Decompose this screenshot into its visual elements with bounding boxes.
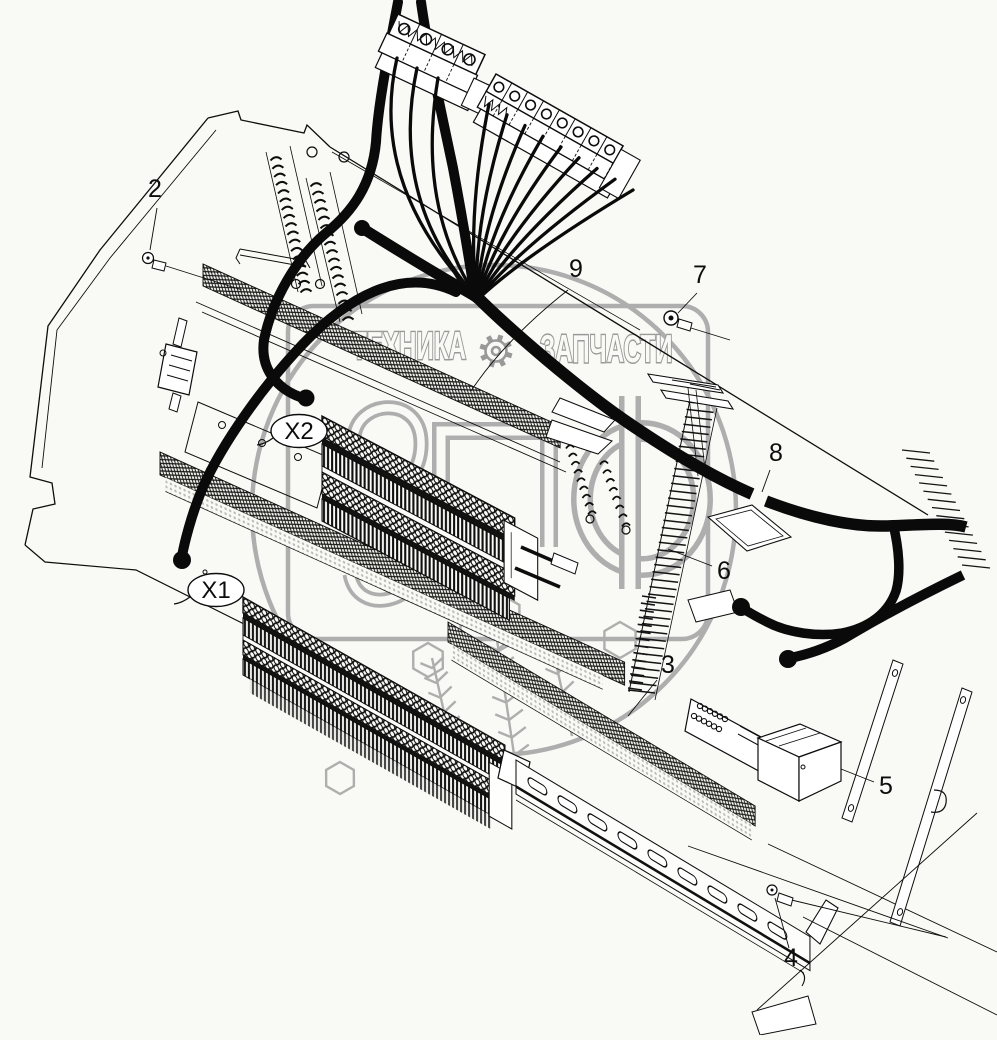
svg-text:7: 7 [693, 261, 707, 289]
svg-text:X1: X1 [201, 577, 230, 604]
svg-text:3: 3 [661, 651, 675, 679]
svg-text:9: 9 [569, 255, 583, 283]
svg-text:6: 6 [717, 557, 731, 585]
svg-text:8: 8 [769, 439, 783, 467]
svg-text:X2: X2 [284, 418, 313, 445]
svg-text:4: 4 [784, 944, 798, 972]
svg-text:2: 2 [148, 175, 162, 203]
svg-text:5: 5 [879, 772, 893, 800]
